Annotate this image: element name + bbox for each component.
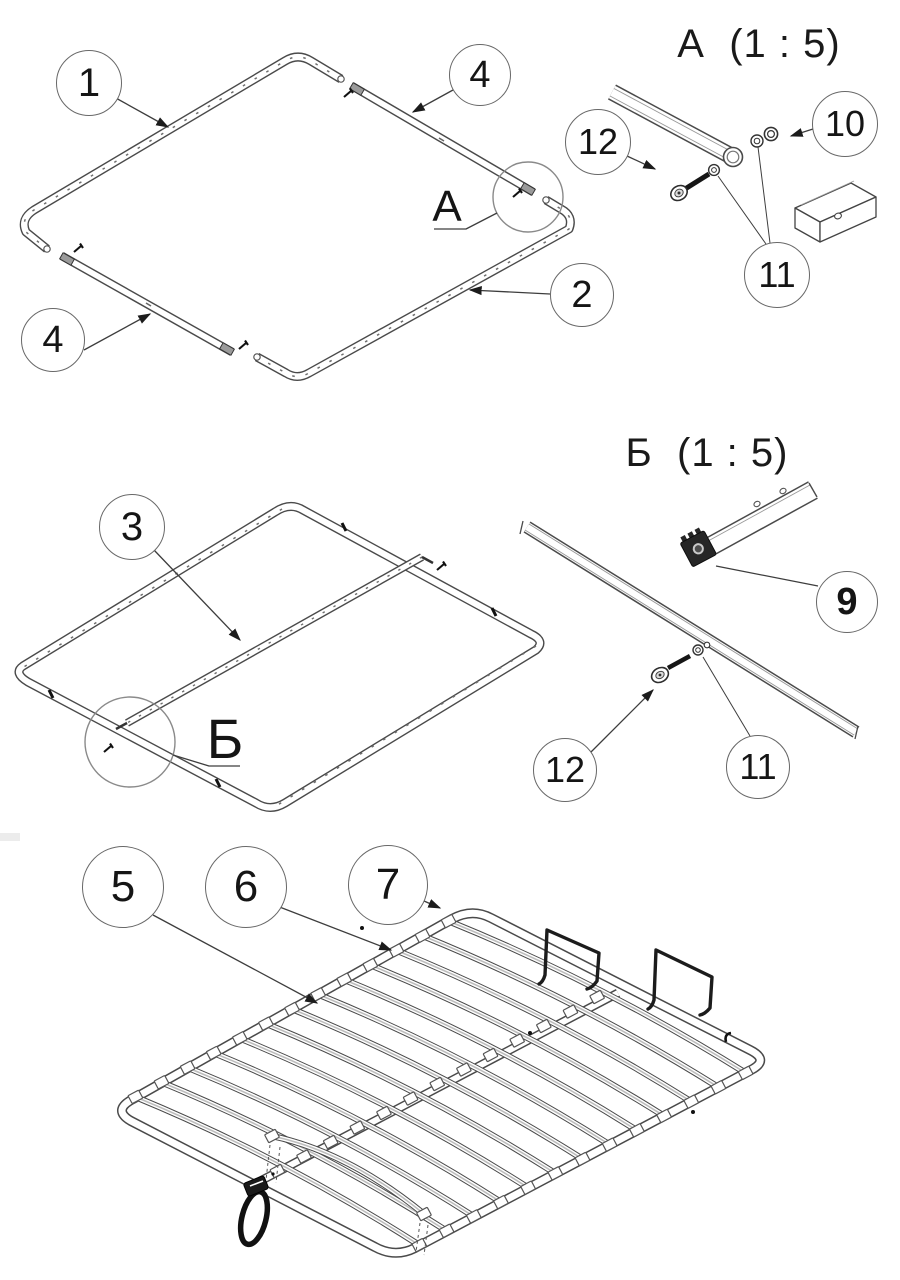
detail-marker-label: А bbox=[432, 182, 461, 231]
detail-marker-b: Б bbox=[207, 711, 244, 767]
callout-part-10: 10 bbox=[812, 91, 878, 157]
leader-lines bbox=[588, 566, 818, 755]
callout-part-3: 3 bbox=[99, 494, 165, 560]
callout-label: 11 bbox=[758, 257, 795, 293]
detail-b-circle bbox=[85, 697, 175, 787]
detail-a-circle bbox=[493, 162, 563, 232]
callout-label: 1 bbox=[78, 63, 100, 103]
callout-part-11-detail-a: 11 bbox=[744, 242, 810, 308]
callout-label: 11 bbox=[739, 749, 776, 785]
callout-part-11-detail-b: 11 bbox=[726, 735, 790, 799]
scan-artifact bbox=[0, 833, 20, 841]
detail-marker-label: Б bbox=[207, 707, 244, 770]
callout-part-7: 7 bbox=[348, 845, 428, 925]
plastic-insert bbox=[678, 526, 717, 567]
callout-part-9: 9 bbox=[816, 571, 878, 633]
assembly-instruction-page: 1 4 2 4 12 10 11 3 9 12 11 5 6 7 А Б А (… bbox=[0, 0, 900, 1280]
callout-label: 7 bbox=[376, 863, 400, 907]
detail-b-title: Б (1 : 5) bbox=[626, 433, 789, 473]
callout-part-4-bottom: 4 bbox=[21, 308, 85, 372]
callout-label: 2 bbox=[571, 276, 592, 314]
callout-label: 5 bbox=[111, 865, 135, 909]
callout-label: 9 bbox=[836, 583, 857, 621]
slat-array bbox=[128, 914, 753, 1252]
callout-label: 6 bbox=[234, 865, 258, 909]
callout-part-12-detail-b: 12 bbox=[533, 738, 597, 802]
callout-part-2: 2 bbox=[550, 263, 614, 327]
callout-part-5: 5 bbox=[82, 846, 164, 928]
slatted-base-view bbox=[122, 901, 760, 1255]
callout-label: 4 bbox=[469, 56, 490, 94]
cable-tie bbox=[236, 1175, 272, 1247]
callout-label: 10 bbox=[825, 106, 865, 142]
detail-a-title: А (1 : 5) bbox=[677, 24, 840, 64]
callout-part-6: 6 bbox=[205, 846, 287, 928]
callout-part-4-top: 4 bbox=[449, 44, 511, 106]
callout-part-12-detail-a: 12 bbox=[565, 109, 631, 175]
callout-label: 12 bbox=[545, 752, 585, 788]
assembled-frame-view bbox=[19, 506, 540, 807]
callout-label: 4 bbox=[42, 321, 63, 359]
detail-b-view bbox=[520, 483, 858, 755]
callout-label: 3 bbox=[121, 507, 143, 547]
callout-part-1: 1 bbox=[56, 50, 122, 116]
callout-label: 12 bbox=[578, 124, 618, 160]
detail-marker-a: А bbox=[432, 185, 461, 229]
